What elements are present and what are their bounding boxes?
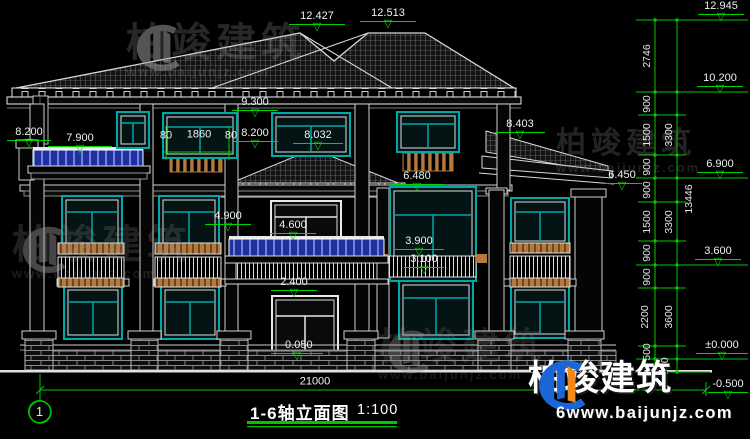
dim-node	[675, 90, 678, 93]
dim-node	[675, 176, 678, 179]
window	[159, 196, 219, 248]
dim-node	[653, 153, 656, 156]
dim-node	[653, 286, 656, 289]
dim-node	[675, 239, 678, 242]
window	[62, 196, 122, 248]
dim-node	[653, 18, 656, 21]
dim-node	[653, 90, 656, 93]
title-underline-thin	[247, 426, 397, 427]
dim-node	[675, 344, 678, 347]
axis-bubble: 1	[28, 400, 51, 423]
window	[117, 112, 149, 148]
window	[163, 113, 237, 158]
window	[511, 198, 569, 245]
brand-logo-url: 6www.baijunjz.com	[556, 404, 733, 423]
dim-node	[675, 18, 678, 21]
center-balcony	[225, 236, 388, 284]
dim-node	[675, 370, 678, 373]
dim-node	[653, 263, 656, 266]
window	[161, 286, 219, 339]
main-roof	[7, 33, 521, 108]
dim-node	[653, 176, 656, 179]
window	[272, 113, 350, 156]
dim-node	[653, 344, 656, 347]
cad-elevation-canvas: 柏竣建筑www.baijunjz.com柏竣建筑www.baijunjz.com…	[0, 0, 750, 439]
window	[511, 286, 569, 338]
dim-node	[675, 113, 678, 116]
brand-logo: 柏竣建筑	[528, 358, 672, 400]
dim-node	[675, 357, 678, 360]
window	[397, 112, 459, 152]
dim-node	[653, 113, 656, 116]
dim-node	[653, 200, 656, 203]
window	[64, 286, 122, 339]
dim-node	[653, 239, 656, 242]
drawing-title: 1-6轴立面图	[250, 399, 350, 424]
dim-node	[675, 200, 678, 203]
dim-node	[675, 153, 678, 156]
dim-node	[675, 286, 678, 289]
dim-node	[675, 263, 678, 266]
drawing-scale: 1:100	[357, 402, 398, 418]
window	[399, 281, 473, 339]
